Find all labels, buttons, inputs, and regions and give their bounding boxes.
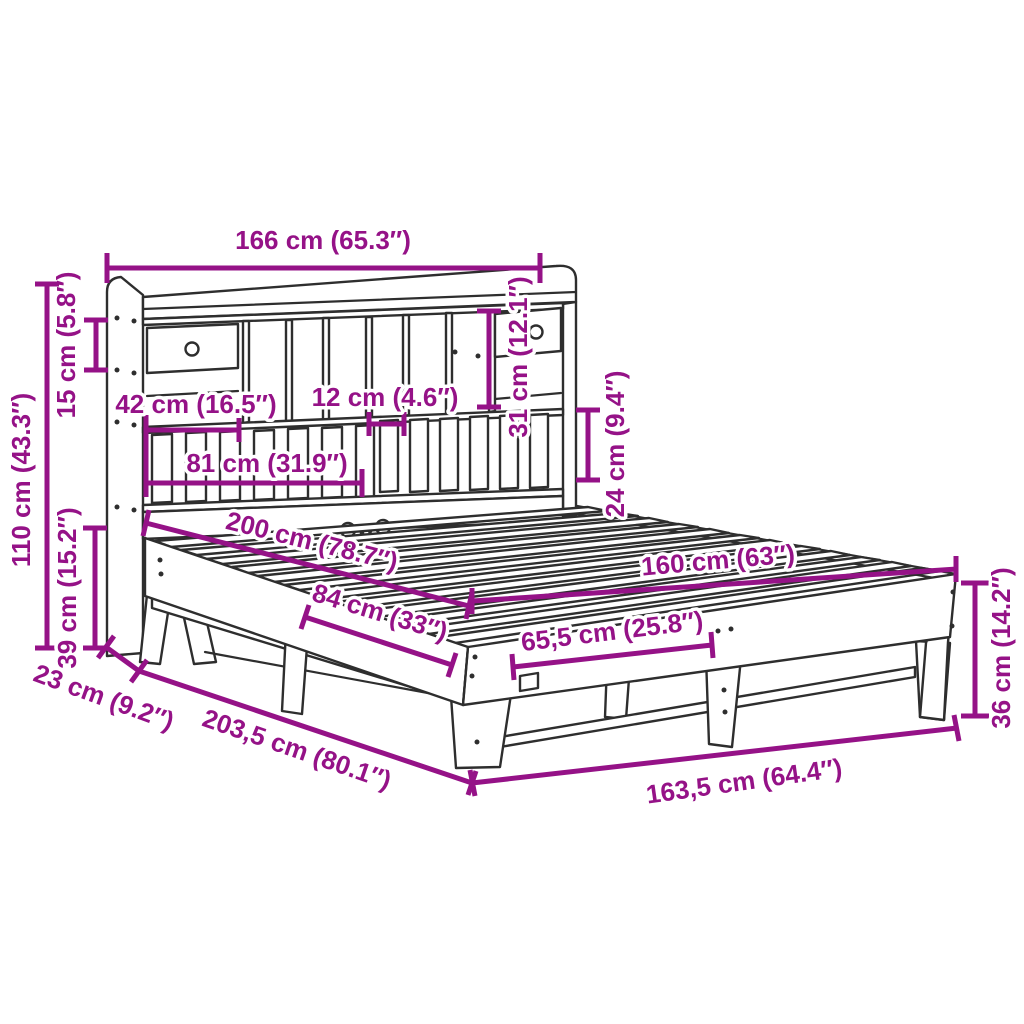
- screw-dot: [476, 354, 481, 359]
- fence-slat: [380, 420, 398, 492]
- fence-slat: [440, 418, 458, 491]
- fence-slat: [410, 419, 428, 492]
- fence-slat: [152, 434, 172, 503]
- dim-label: 15 cm (5.8″): [51, 272, 81, 419]
- screw-dot: [159, 572, 164, 577]
- screw-dot: [115, 316, 120, 321]
- screw-dot: [951, 590, 956, 595]
- divider: [286, 320, 292, 422]
- screw-dot: [132, 371, 137, 376]
- dim-24-fence-height: 24 cm (9.4″): [576, 371, 630, 518]
- dim-label: 31 cm (12.1″): [503, 276, 533, 437]
- dim-line: [576, 410, 600, 480]
- screw-dot: [115, 368, 120, 373]
- screw-dot: [475, 740, 480, 745]
- screw-dot: [729, 627, 734, 632]
- dim-line: [84, 320, 108, 370]
- screw-dot: [132, 423, 137, 428]
- dim-label: 42 cm (16.5″): [115, 389, 276, 419]
- screw-dot: [115, 505, 120, 510]
- screw-dot: [470, 674, 475, 679]
- drawer-knob: [186, 343, 199, 356]
- dim-label: 110 cm (43.3″): [6, 393, 36, 567]
- screw-dot: [132, 319, 137, 324]
- dim-label: 166 cm (65.3″): [235, 225, 411, 255]
- dim-label: 24 cm (9.4″): [600, 371, 630, 518]
- headboard-left-panel: [107, 277, 143, 656]
- screw-dot: [473, 655, 478, 660]
- dim-label: 12 cm (4.6″): [312, 382, 459, 412]
- dim-label: 36 cm (14.2″): [986, 567, 1016, 728]
- dim-label: 39 cm (15.2″): [52, 507, 82, 668]
- dim-label: 81 cm (31.9″): [186, 448, 347, 478]
- headboard-drawer-left: [147, 324, 238, 396]
- screw-dot: [115, 420, 120, 425]
- screw-dot: [132, 508, 137, 513]
- dim-15-shelf-height: 15 cm (5.8″): [51, 272, 108, 419]
- screw-dot: [158, 558, 163, 563]
- screw-dot: [722, 688, 727, 693]
- foot-rail-tab: [520, 673, 538, 691]
- dim-36-base-height: 36 cm (14.2″): [961, 567, 1016, 728]
- screw-dot: [716, 629, 721, 634]
- screw-dot: [723, 710, 728, 715]
- headboard-right-strip: [563, 302, 576, 516]
- dim-line: [83, 528, 107, 648]
- dim-39-lower-height: 39 cm (15.2″): [52, 507, 107, 668]
- dim-label: 23 cm (9.2″): [30, 658, 178, 736]
- diagram-stage: 166 cm (65.3″) 15 cm (5.8″) 110 cm (43.3…: [0, 0, 1024, 1024]
- bed-dimension-diagram: 166 cm (65.3″) 15 cm (5.8″) 110 cm (43.3…: [0, 0, 1024, 1024]
- fence-slat: [470, 416, 488, 490]
- dim-line: [961, 583, 989, 716]
- screw-dot: [950, 624, 955, 629]
- screw-dot: [453, 350, 458, 355]
